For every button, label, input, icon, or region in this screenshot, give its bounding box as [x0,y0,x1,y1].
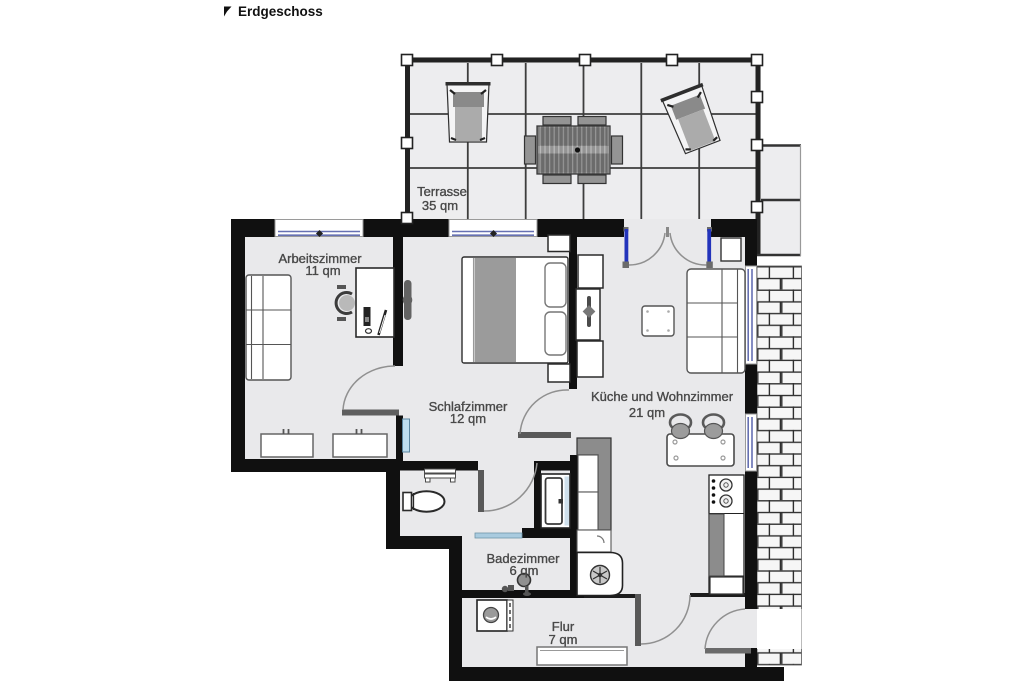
svg-text:12 qm: 12 qm [450,411,486,426]
svg-text:35 qm: 35 qm [422,198,458,213]
svg-text:7 qm: 7 qm [549,632,578,647]
svg-text:Erdgeschoss: Erdgeschoss [238,4,323,19]
svg-text:6 qm: 6 qm [510,563,539,578]
svg-text:21 qm: 21 qm [629,405,665,420]
svg-text:Küche und Wohnzimmer: Küche und Wohnzimmer [591,389,734,404]
svg-text:11 qm: 11 qm [305,263,340,278]
svg-text:Terrasse: Terrasse [417,184,467,199]
